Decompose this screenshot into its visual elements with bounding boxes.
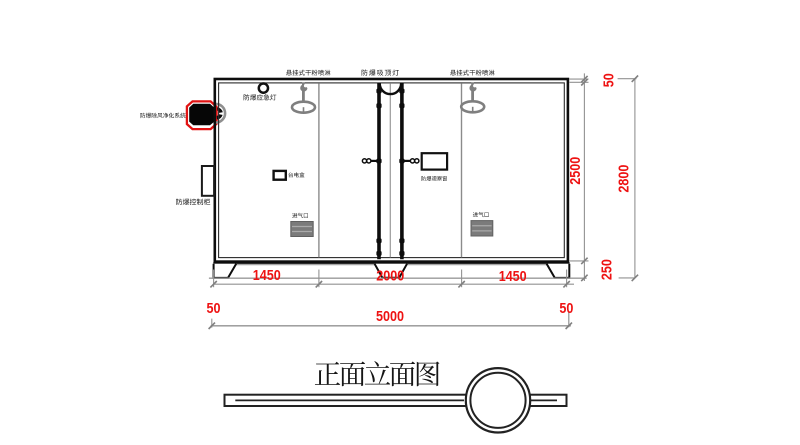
svg-text:1450: 1450 <box>253 267 281 284</box>
svg-text:250: 250 <box>599 259 616 280</box>
svg-text:2800: 2800 <box>616 165 633 193</box>
svg-text:2000: 2000 <box>376 267 404 284</box>
svg-text:50: 50 <box>207 300 221 317</box>
svg-text:2500: 2500 <box>567 157 584 185</box>
svg-text:50: 50 <box>600 73 617 87</box>
svg-text:1450: 1450 <box>499 268 527 285</box>
svg-text:50: 50 <box>559 300 573 317</box>
svg-text:5000: 5000 <box>376 308 404 325</box>
